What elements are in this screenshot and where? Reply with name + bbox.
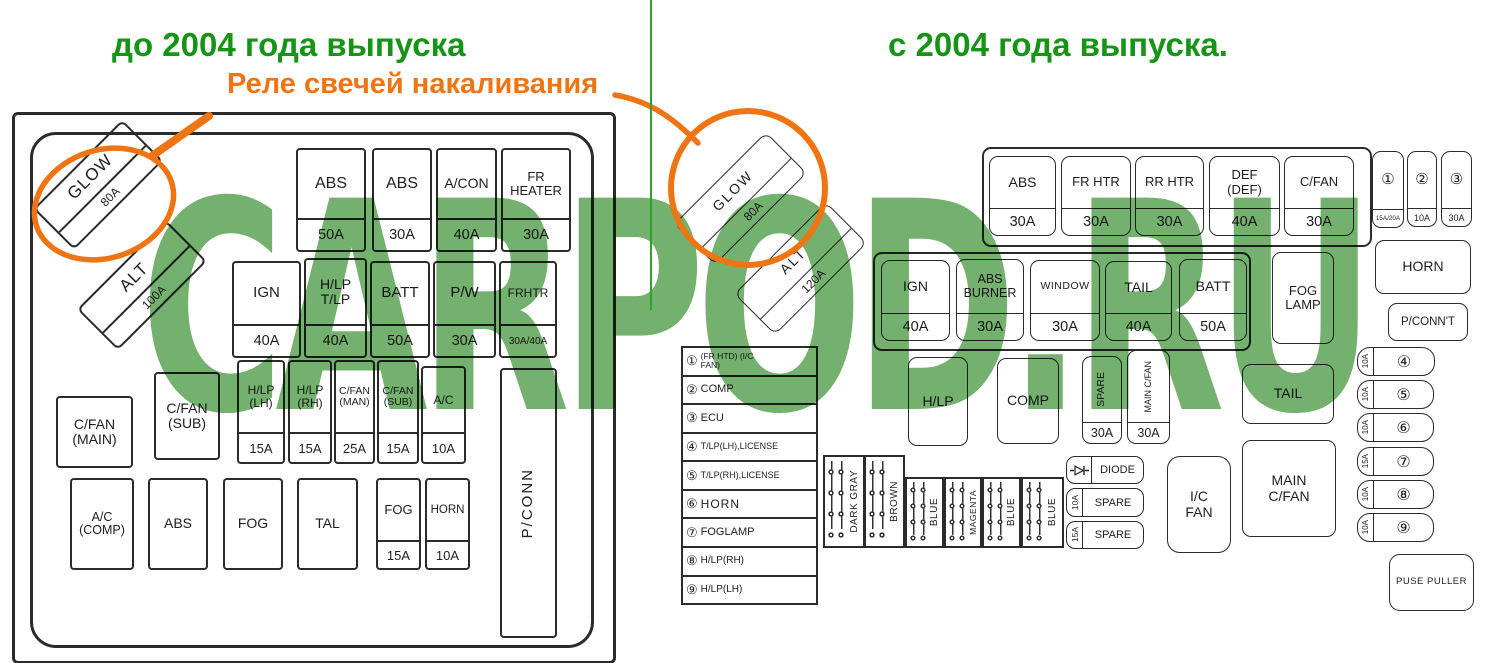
legend-row: ⑥ HORN (681, 489, 818, 520)
wire-label-wrap: MAGENTA (967, 481, 979, 544)
fuse-number: ⑦ (1374, 448, 1433, 475)
pconnt-connector: P/CONN'T (1388, 303, 1468, 341)
numbered-fuse-6: 10A ⑥ (1357, 413, 1434, 442)
mini-fuse-1: ① 15A/20A (1372, 151, 1404, 228)
fuse-label: SPARE (1083, 489, 1143, 516)
connector-pins-icon (957, 481, 967, 544)
fuse-number: ⑨ (1374, 514, 1433, 541)
watermark: CARPOD.RU (140, 165, 1366, 455)
numbered-fuse-7: 15A ⑦ (1357, 447, 1434, 476)
legend-label: HORN (701, 498, 740, 511)
wire-label-wrap: BLUE (1005, 481, 1018, 544)
wire-label-wrap: BLUE (1044, 481, 1061, 544)
amp-label: 10A (1361, 520, 1370, 534)
fuse-number: ⑤ (1374, 381, 1433, 408)
legend-number: ⑥ (686, 496, 698, 512)
wire-label: BLUE (929, 498, 940, 526)
fuse-label: HORN (1376, 241, 1470, 293)
fuse-number: ⑥ (1374, 414, 1433, 441)
fuse-number: ② (1408, 152, 1436, 208)
connector-pins-icon (1024, 481, 1034, 544)
legend-row: ⑧ H/LP(RH) (681, 546, 818, 577)
connector-pins-icon (985, 481, 995, 544)
fuse-number: ⑧ (1374, 481, 1433, 508)
fuse-number: ③ (1442, 152, 1471, 208)
amp-label: 15A (1070, 527, 1080, 542)
mini-fuse-3: ③ 30A (1441, 151, 1472, 227)
wire-label: MAGENTA (968, 490, 978, 535)
right-title: с 2004 года выпуска. (888, 26, 1228, 64)
connector-pins-icon (918, 481, 928, 544)
numbered-fuse-5: 10A ⑤ (1357, 380, 1434, 409)
fuse-label: P/CONN'T (1389, 304, 1467, 340)
legend-number: ⑦ (686, 525, 698, 541)
connector-magenta: MAGENTA (944, 477, 982, 548)
fuse-amp: 15A/20A (1373, 209, 1403, 227)
legend-number: ⑧ (686, 553, 698, 569)
spare-15a-slot: 15A SPARE (1066, 521, 1144, 549)
fuse-number: ④ (1374, 348, 1434, 375)
legend-label: FOGLAMP (701, 527, 755, 539)
connector-pins-icon (947, 481, 957, 544)
connector-pins-icon (995, 481, 1005, 544)
spare-10a-slot: 10A SPARE (1066, 488, 1144, 517)
relay-horn: HORN (1375, 240, 1471, 294)
wire-label: BLUE (1006, 498, 1017, 526)
numbered-fuse-4: 10A ④ (1357, 347, 1435, 376)
connector-pins-icon (1034, 481, 1044, 544)
legend-label: H/LP(RH) (701, 556, 744, 567)
wire-label: DARK GRAY (849, 470, 860, 533)
wire-label-wrap: BLUE (928, 481, 941, 544)
amp-label: 10A (1361, 487, 1370, 501)
fuse-label: PUSE PULLER (1390, 555, 1473, 610)
amp-label: 10A (1070, 495, 1080, 510)
fuse-number: ① (1373, 152, 1403, 209)
numbered-fuse-8: 10A ⑧ (1357, 480, 1434, 509)
glow-relay-annotation: Реле свечей накаливания (227, 68, 598, 101)
connector-blue-1: BLUE (905, 477, 944, 548)
fuse-amp: 10A (1358, 514, 1374, 541)
connector-pins-icon (908, 481, 918, 544)
fuse-label: SPARE (1083, 522, 1143, 548)
wire-label: BLUE (1047, 498, 1058, 526)
fuse-amp: 10A (1067, 489, 1083, 516)
connector-blue-3: BLUE (1021, 477, 1064, 548)
fuse-amp: 15A (1067, 522, 1083, 548)
numbered-fuse-9: 10A ⑨ (1357, 513, 1434, 542)
wire-label: BROWN (889, 481, 900, 522)
fuse-amp: 10A (1358, 481, 1374, 508)
fuse-amp: 30A (1442, 208, 1471, 226)
mini-fuse-2: ② 10A (1407, 151, 1437, 227)
connector-blue-2: BLUE (982, 477, 1021, 548)
legend-label: H/LP(LH) (701, 585, 743, 596)
fuse-puller: PUSE PULLER (1389, 554, 1474, 611)
legend-row: ⑨ H/LP(LH) (681, 575, 818, 606)
left-title: до 2004 года выпуска (112, 26, 466, 64)
legend-number: ⑨ (686, 582, 698, 598)
fuse-diagram-page: до 2004 года выпуска Реле свечей накалив… (0, 0, 1500, 663)
fuse-amp: 10A (1408, 208, 1436, 226)
divider-line (650, 0, 652, 310)
legend-row: ⑦ FOGLAMP (681, 517, 818, 548)
